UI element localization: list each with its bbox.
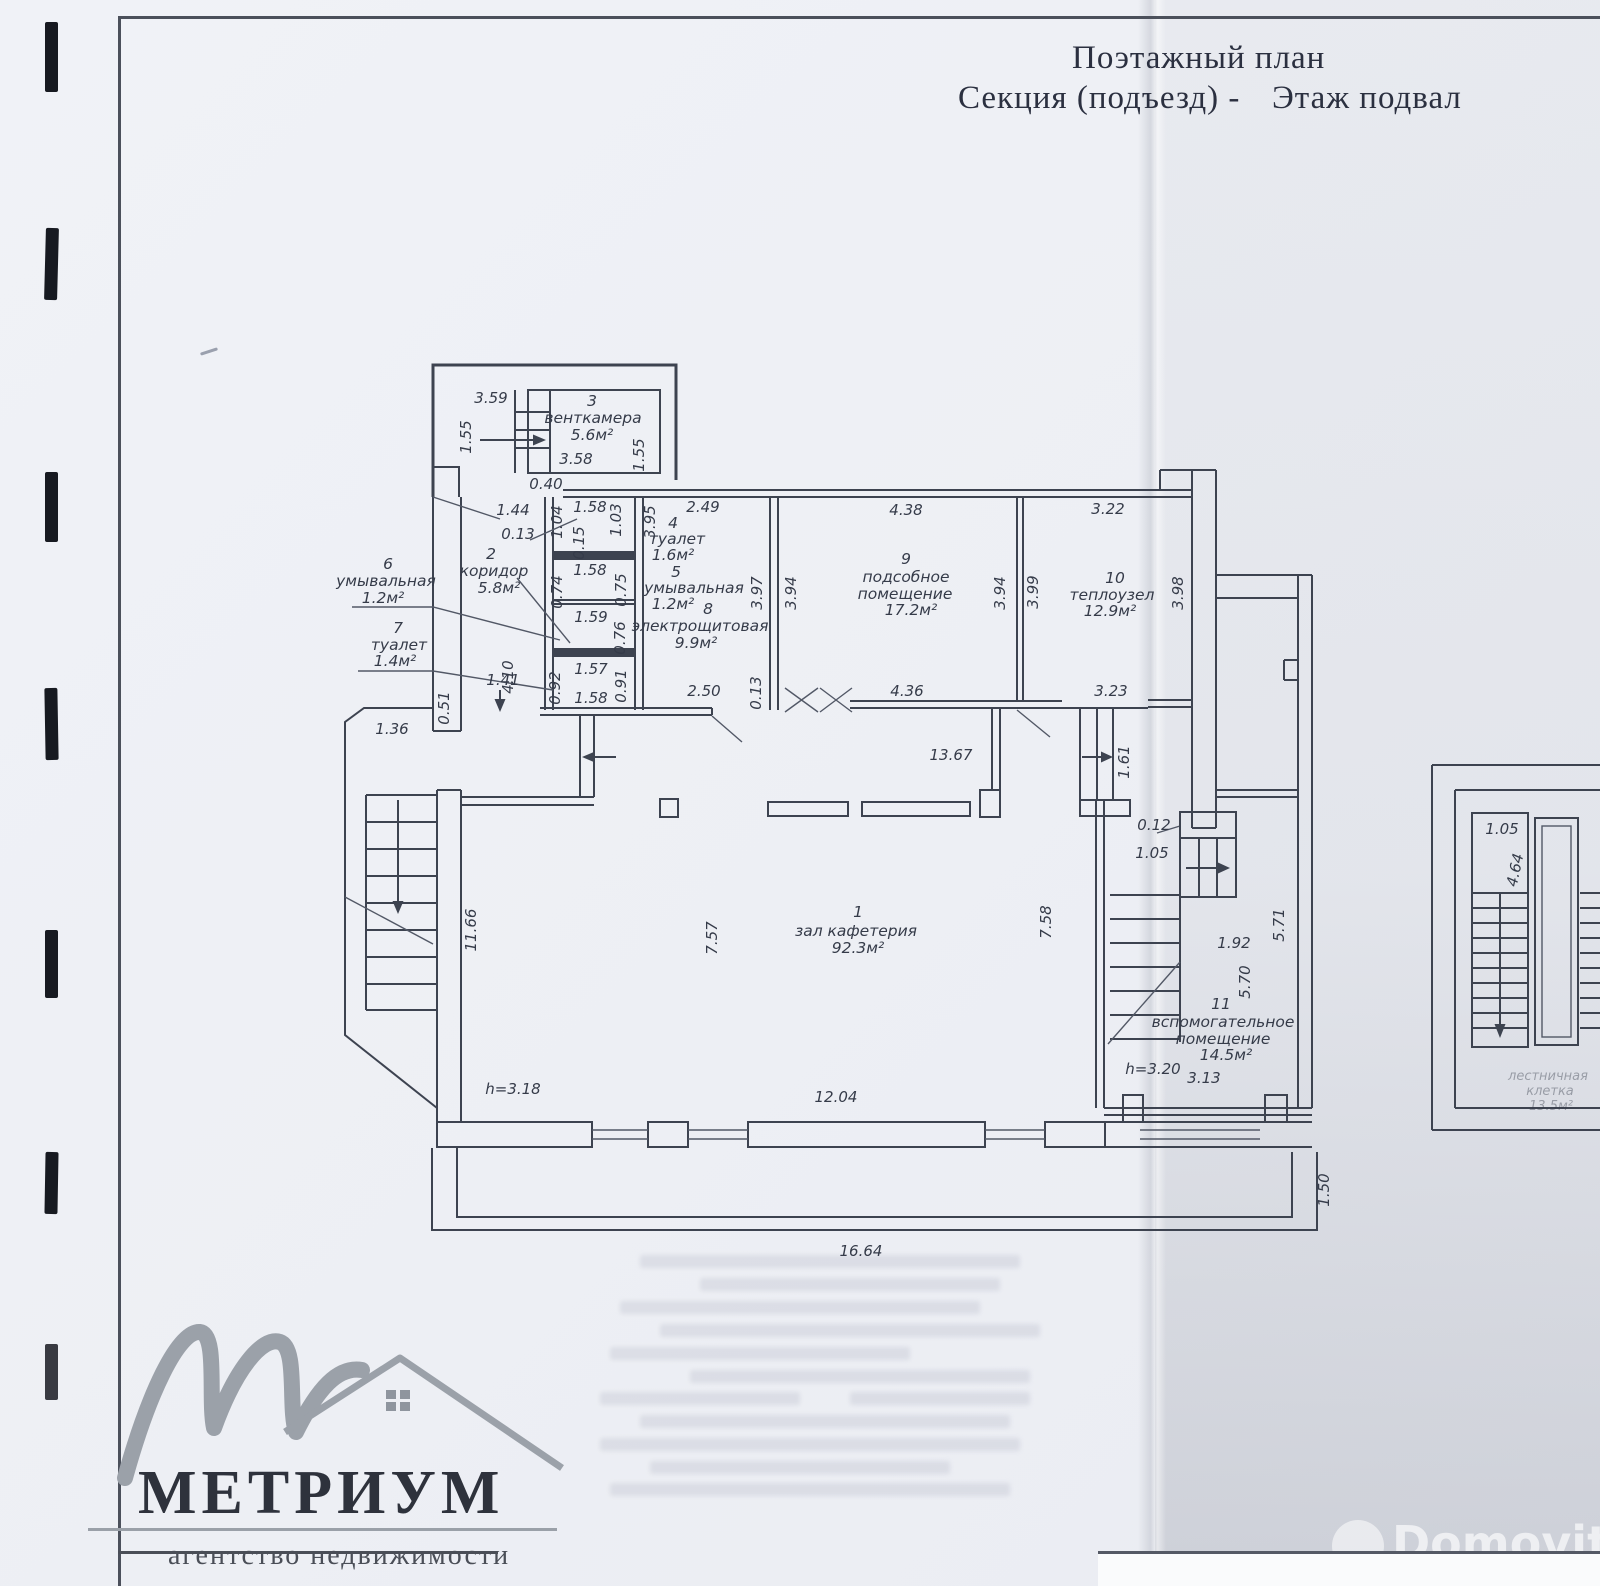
metrium-logo — [80, 1280, 600, 1580]
dimension-label: 0.91 — [612, 669, 630, 702]
dimension-label: 7.57 — [703, 921, 721, 955]
room-label-ventkamera: 3 венткамера 5.6м² — [544, 392, 641, 444]
dimension-label: 0.75 — [612, 573, 630, 606]
dimension-label: 1.04 — [548, 505, 566, 538]
dimension-label: 1.58 — [574, 689, 607, 707]
dimension-label: 1.55 — [630, 438, 648, 471]
svg-text:1.4м²: 1.4м² — [374, 652, 417, 670]
room-label-corridor: 2 коридор 5.8м² — [460, 545, 529, 597]
dimension-label: 5.71 — [1270, 908, 1288, 941]
dimension-label: 5.70 — [1236, 965, 1254, 998]
height-label: h=3.18 — [485, 1080, 540, 1098]
dimension-label: 7.58 — [1037, 905, 1055, 938]
dimension-label: 11.66 — [462, 909, 480, 952]
svg-text:9.9м²: 9.9м² — [675, 634, 718, 652]
svg-text:подсобное: подсобное — [862, 568, 949, 586]
svg-text:венткамера: венткамера — [544, 409, 641, 427]
svg-text:1.2м²: 1.2м² — [362, 589, 405, 607]
svg-text:1: 1 — [853, 903, 863, 921]
svg-text:1.2м²: 1.2м² — [652, 595, 695, 613]
dimension-label: 1.41 — [486, 671, 519, 689]
tagline-strike-line — [118, 1551, 498, 1554]
dimension-label: 3.97 — [748, 576, 766, 610]
dimension-label: 4.36 — [890, 682, 923, 700]
svg-text:2: 2 — [486, 545, 496, 563]
dimension-label: 1.05 — [1135, 844, 1168, 862]
doors-and-leader-lines — [352, 497, 1180, 833]
svg-text:зал кафетерия: зал кафетерия — [795, 922, 917, 940]
dimension-label: 12.04 — [815, 1088, 858, 1106]
metrium-logo-graphic — [80, 1280, 600, 1580]
agency-tagline: агентство недвижимости — [168, 1540, 510, 1572]
dimension-label: 1.36 — [375, 720, 408, 738]
dimension-label: 1.05 — [1485, 820, 1518, 838]
dimension-label: 0.51 — [435, 691, 453, 724]
room-label-toilet7: 7 туалет 1.4м² — [371, 619, 428, 670]
svg-text:5.8м²: 5.8м² — [478, 579, 521, 597]
svg-text:6: 6 — [383, 555, 393, 573]
svg-text:лестничная: лестничная — [1507, 1069, 1588, 1084]
svg-text:7: 7 — [393, 619, 403, 637]
room-label-washroom6: 6 умывальная 1.2м² — [335, 555, 436, 607]
dimension-label: 3.58 — [559, 450, 592, 468]
svg-text:5.6м²: 5.6м² — [571, 426, 614, 444]
dimension-label: 3.98 — [1169, 576, 1187, 609]
dimension-label: 2.50 — [687, 682, 720, 700]
underlying-page — [1098, 1554, 1600, 1586]
svg-text:электрощитовая: электрощитовая — [632, 617, 769, 635]
dimension-label: 4.38 — [889, 501, 922, 519]
dimension-label: 16.64 — [840, 1242, 883, 1260]
dimension-label: 1.92 — [1217, 934, 1250, 952]
hall-walls — [432, 575, 1317, 1230]
dimension-label: 0.40 — [529, 475, 562, 493]
dimension-label: 3.94 — [782, 576, 800, 609]
dimension-label: 1.58 — [573, 498, 606, 516]
svg-text:8: 8 — [703, 600, 713, 618]
svg-text:11: 11 — [1211, 995, 1231, 1013]
dimension-label: 2.49 — [686, 498, 719, 516]
svg-text:3: 3 — [587, 392, 597, 410]
dimension-label: 3.23 — [1094, 682, 1127, 700]
svg-text:клетка: клетка — [1526, 1084, 1574, 1099]
room-label-utility9: 9 подсобное помещение 17.2м² — [858, 550, 953, 619]
svg-text:коридор: коридор — [460, 562, 529, 580]
agency-name: МЕТРИУМ — [138, 1458, 568, 1529]
dimension-label: 0.13 — [747, 676, 765, 709]
dimension-label: 3.59 — [474, 389, 507, 407]
svg-text:умывальная: умывальная — [335, 572, 436, 590]
room-label-heat: 10 теплоузел 12.9м² — [1070, 569, 1155, 620]
svg-text:13.5м²: 13.5м² — [1529, 1099, 1573, 1114]
room-label-aux11: 11 вспомогательное помещение 14.5м² — [1152, 995, 1295, 1064]
scanned-floor-plan-page: Поэтажный план Секция (подъезд) - Этаж п… — [0, 0, 1600, 1586]
dimension-label: 13.67 — [930, 746, 973, 764]
dimension-label: 1.03 — [607, 503, 625, 536]
dimension-label: 0.12 — [1137, 816, 1170, 834]
dimension-labels: 3.59 1.55 3.58 1.55 0.40 1.44 0.13 1.04 … — [375, 389, 1527, 1260]
dimension-label: 1.55 — [457, 420, 475, 453]
svg-text:10: 10 — [1105, 569, 1125, 587]
dimension-label: 1.61 — [1115, 745, 1133, 778]
dimension-label: 1.59 — [574, 608, 607, 626]
dimension-label: 0.15 — [570, 526, 588, 559]
dimension-label: 4.64 — [1503, 852, 1528, 888]
dimension-label: 0.76 — [611, 621, 629, 654]
left-exterior-staircase — [345, 708, 437, 1108]
logo-rule — [88, 1528, 557, 1531]
dimension-label: 3.13 — [1187, 1069, 1220, 1087]
svg-text:9: 9 — [901, 550, 911, 568]
svg-text:1.6м²: 1.6м² — [652, 546, 695, 564]
svg-text:12.9м²: 12.9м² — [1084, 602, 1136, 620]
dimension-label: 3.99 — [1024, 575, 1042, 608]
svg-text:92.3м²: 92.3м² — [832, 939, 884, 957]
svg-text:17.2м²: 17.2м² — [885, 601, 937, 619]
room-label-washroom5: 5 умывальная 1.2м² — [643, 563, 744, 613]
dimension-label: 1.57 — [574, 660, 608, 678]
dimension-label: 1.50 — [1315, 1173, 1333, 1206]
dimension-label: 3.94 — [991, 576, 1009, 609]
height-label: h=3.20 — [1125, 1060, 1180, 1078]
dimension-label: 3.22 — [1091, 500, 1124, 518]
dimension-label: 0.74 — [548, 575, 566, 608]
svg-text:14.5м²: 14.5м² — [1200, 1046, 1252, 1064]
dimension-label: 0.92 — [546, 671, 564, 704]
dimension-label: 0.13 — [501, 525, 534, 543]
svg-text:вспомогательное: вспомогательное — [1152, 1013, 1295, 1031]
room-label-hall: 1 зал кафетерия 92.3м² — [795, 903, 917, 957]
dimension-label: 1.44 — [496, 501, 529, 519]
dimension-label: 1.58 — [573, 561, 606, 579]
